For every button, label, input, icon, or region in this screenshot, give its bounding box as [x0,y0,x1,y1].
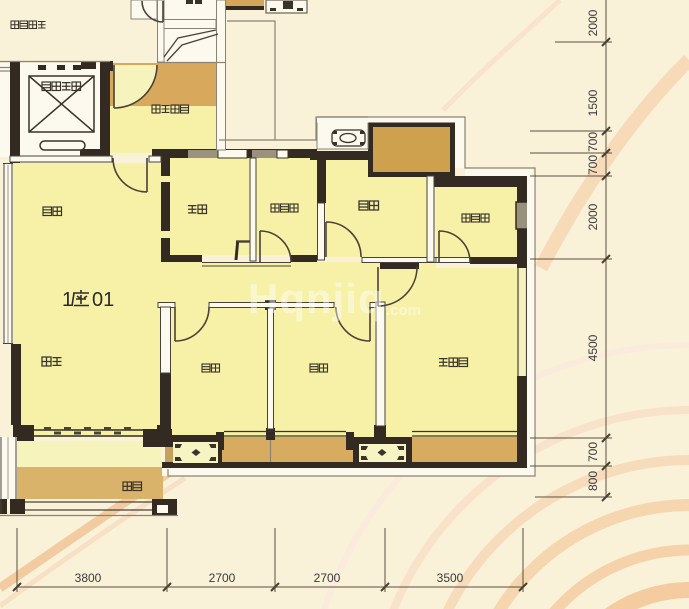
svg-text:.com: .com [386,302,421,319]
svg-text:2700: 2700 [314,571,341,585]
svg-text:1: 1 [62,289,73,311]
svg-text:2000: 2000 [586,203,600,230]
svg-text:Hqnjiq: Hqnjiq [248,275,385,322]
svg-text:700: 700 [586,132,600,152]
svg-text:2700: 2700 [209,571,236,585]
svg-text:800: 800 [586,471,600,491]
svg-text:700: 700 [586,442,600,462]
svg-text:700: 700 [586,155,600,175]
svg-text:3800: 3800 [75,571,102,585]
svg-text:2000: 2000 [586,9,600,36]
svg-text:1500: 1500 [586,89,600,116]
svg-text:4500: 4500 [586,334,600,361]
svg-text:01: 01 [92,289,114,311]
svg-text:3500: 3500 [437,571,464,585]
